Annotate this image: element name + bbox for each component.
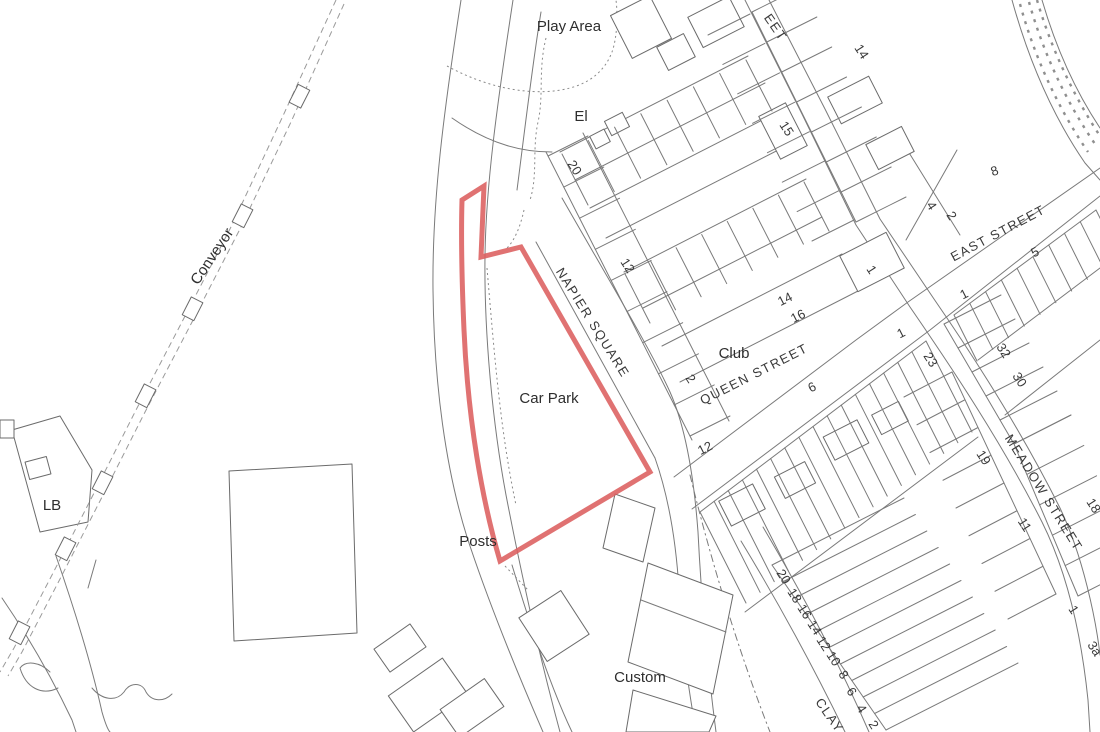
house-number-label: 6 xyxy=(805,379,818,396)
house-number-label: 16 xyxy=(788,306,808,326)
terrace-plot-lines xyxy=(548,0,1100,730)
feature-label: Club xyxy=(719,345,750,362)
street-name-label: QUEEN STREET xyxy=(697,340,810,407)
site-plan-svg: Play AreaElClubCar ParkPostsCustomLBConv… xyxy=(0,0,1100,732)
feature-label: Conveyor xyxy=(187,225,237,288)
house-number-label: 30 xyxy=(1010,369,1030,389)
house-number-label: 20 xyxy=(565,157,585,177)
feature-label: Custom xyxy=(614,669,666,686)
house-number-label: 2 xyxy=(683,371,700,385)
house-number-label: 8 xyxy=(988,162,1000,179)
house-number-label: 2 xyxy=(944,208,961,222)
house-number-label: 1 xyxy=(957,286,970,303)
house-number-label: 8 xyxy=(836,667,853,681)
feature-label: Posts xyxy=(459,533,497,550)
feature-label: LB xyxy=(43,497,61,514)
feature-label: Car Park xyxy=(519,390,579,407)
house-number-label: 12 xyxy=(695,438,715,458)
house-number-label: 16 xyxy=(795,601,815,621)
embankment-hatching xyxy=(1012,0,1100,180)
house-number-label: 6 xyxy=(844,684,861,698)
house-number-label: 12 xyxy=(618,255,638,275)
street-name-label: CLAY xyxy=(812,695,847,732)
house-number-label: 14 xyxy=(805,617,825,637)
feature-label: El xyxy=(574,108,587,125)
house-number-label: 32 xyxy=(994,340,1014,360)
street-name-label: MEADOW STREET xyxy=(1002,432,1086,554)
house-number-label: 20 xyxy=(774,566,794,586)
house-number-label: 1 xyxy=(894,325,907,342)
house-number-label: 14 xyxy=(775,289,795,309)
house-number-label: 14 xyxy=(852,41,872,61)
house-number-label: 19 xyxy=(974,447,994,467)
house-number-label: 23 xyxy=(921,349,941,369)
house-number-label: 11 xyxy=(1015,515,1035,534)
feature-label: Play Area xyxy=(537,18,602,35)
site-plan-map: Play AreaElClubCar ParkPostsCustomLBConv… xyxy=(0,0,1100,732)
house-number-label: 3a xyxy=(1085,638,1100,659)
house-number-label: 10 xyxy=(824,648,844,668)
house-number-label: 4 xyxy=(924,198,941,212)
